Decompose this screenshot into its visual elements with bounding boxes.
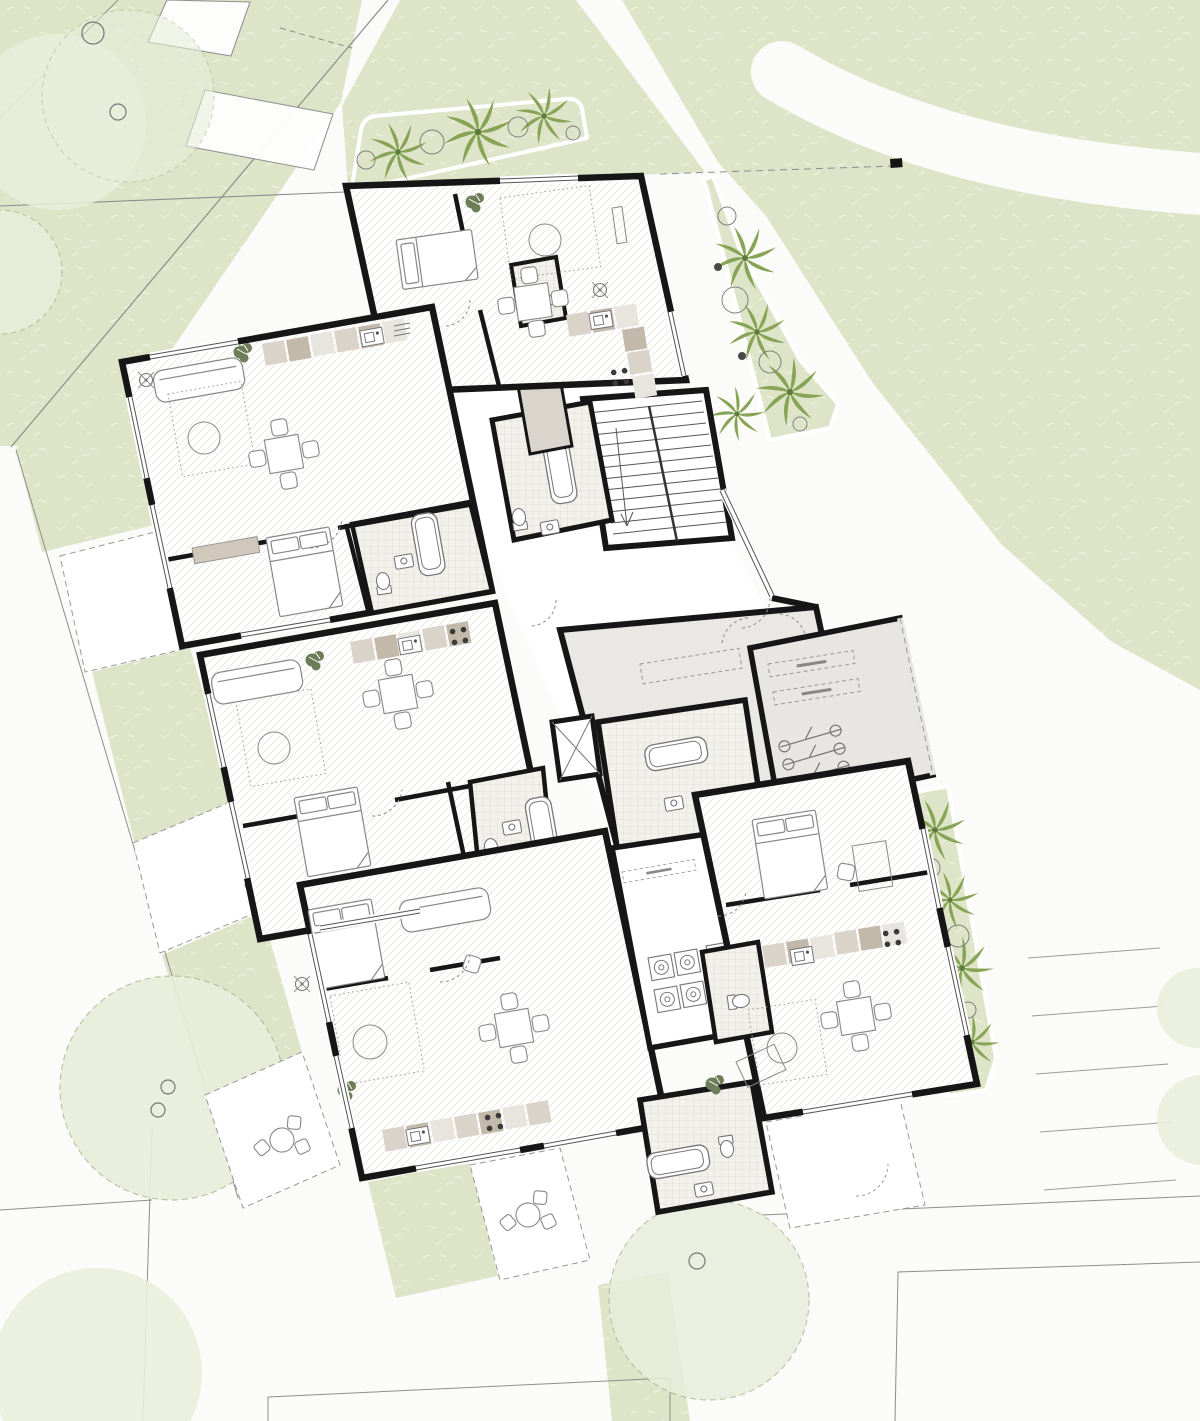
apt-r-k5: [858, 926, 883, 951]
apt-ml-k4: [422, 625, 447, 650]
apt-bl-k3: [430, 1117, 455, 1142]
apt-ml-bed: [294, 787, 371, 877]
apt-r-k4: [834, 930, 859, 955]
apt-tl-k2: [286, 336, 311, 361]
floor-plan-canvas: [0, 0, 1200, 1421]
apt-r-bath: [702, 942, 772, 1042]
tree-canopy-1b: [42, 10, 214, 182]
apt-tl-k3: [310, 331, 335, 356]
apt-bl-k7: [526, 1100, 551, 1125]
apt-bl-ksink: [406, 1126, 430, 1146]
patio-terrace-right: [766, 1100, 925, 1228]
washer-1: [648, 954, 675, 981]
apt-top-k3: [614, 304, 639, 329]
bollard-2: [738, 352, 746, 360]
apt-bl-k4: [454, 1113, 479, 1138]
apt-r-bed: [752, 810, 828, 899]
bollard-1: [714, 263, 722, 271]
apt-tl-bed: [266, 527, 343, 617]
apt-top-k6: [632, 374, 657, 399]
apt-r-desk-chair: [837, 863, 856, 882]
apt-top-ksink: [589, 310, 613, 329]
apt-top-k1: [566, 312, 591, 337]
apt-tl-k4: [334, 327, 359, 352]
apt-tl-k1: [262, 340, 287, 365]
washer-2: [674, 949, 701, 976]
core-bath2-sink: [664, 796, 684, 812]
apt-ml-k1: [350, 638, 375, 663]
floor-plan-page: [0, 0, 1200, 1421]
apt-ml-k5: [446, 621, 471, 646]
tree-canopy-5: [609, 1200, 809, 1400]
apt-r-ksink: [790, 946, 814, 965]
apt-ml-k2: [374, 634, 399, 659]
apt-tl-ksink: [360, 327, 384, 347]
apt-tl-sink: [394, 554, 414, 570]
site-plan-scene: [0, 0, 1200, 1421]
apt-bl-k6: [502, 1104, 527, 1129]
apt-r-k1: [762, 943, 787, 968]
apt-top-k5: [627, 350, 652, 375]
washer-3: [654, 986, 681, 1013]
apt-top-k4: [622, 327, 647, 352]
apt-ml-sink: [502, 820, 522, 836]
apt-top-bed: [396, 229, 478, 289]
apt-r-k3: [810, 935, 835, 960]
apt-ml-ksink: [398, 635, 422, 655]
core-bath-sink: [540, 520, 560, 536]
terrace-tick-top: [890, 158, 903, 168]
washer-4: [680, 981, 707, 1008]
bath-south-sink: [694, 1182, 714, 1198]
apt-bl-k1: [382, 1126, 407, 1151]
